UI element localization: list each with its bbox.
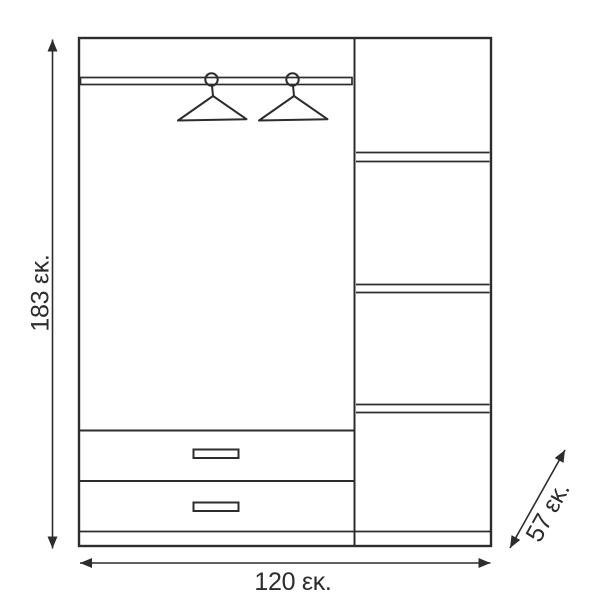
height-dimension-label: 183 εκ.	[27, 254, 55, 331]
hanger-icon	[178, 73, 247, 120]
wardrobe-dimension-diagram: 183 εκ. 120 εκ. 57 εκ.	[0, 0, 600, 600]
drawer-handle	[194, 450, 239, 459]
hanger-body	[178, 96, 247, 121]
depth-dimension: 57 εκ.	[510, 450, 576, 548]
width-dimension: 120 εκ.	[80, 563, 491, 596]
shelf-column	[356, 153, 490, 413]
hanger-neck	[212, 86, 213, 96]
hanger-neck	[293, 86, 294, 96]
depth-dimension-label: 57 εκ.	[520, 478, 575, 547]
hanger-body	[259, 96, 328, 121]
height-dimension: 183 εκ.	[27, 40, 55, 549]
wardrobe-body	[79, 38, 491, 546]
hanger-icon	[259, 73, 328, 120]
drawer-section	[80, 431, 490, 532]
diagram-stage: 183 εκ. 120 εκ. 57 εκ.	[0, 0, 600, 600]
drawer-handle	[194, 503, 239, 512]
width-dimension-label: 120 εκ.	[254, 568, 331, 596]
